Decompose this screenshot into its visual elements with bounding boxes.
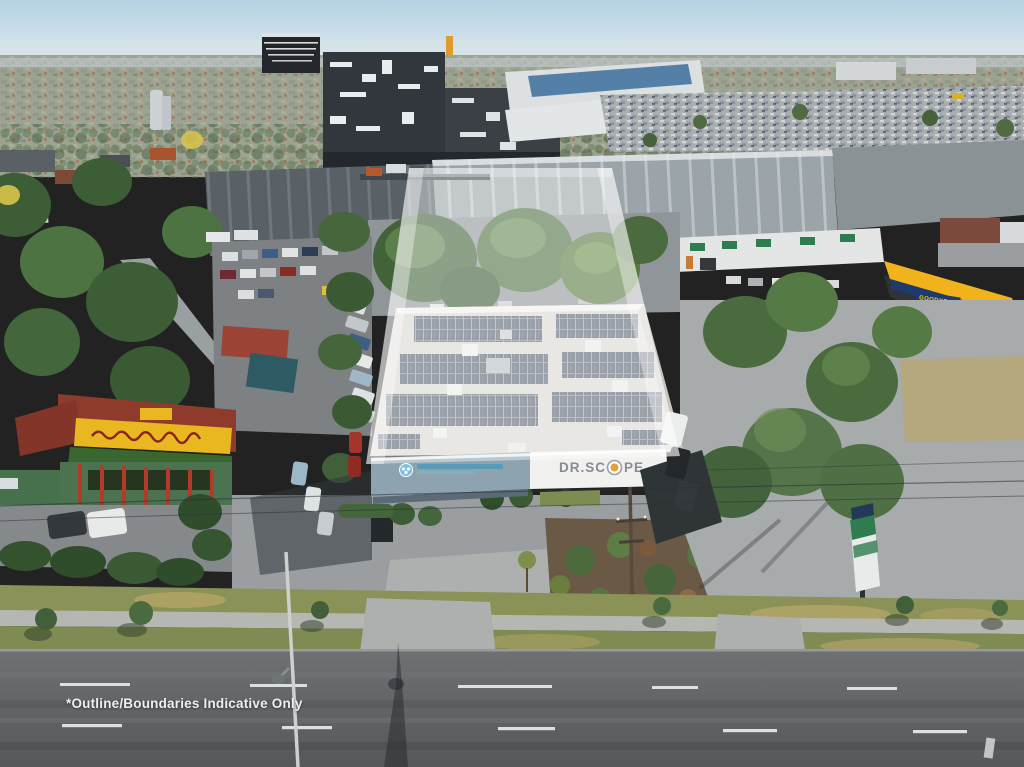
dr-scope-text-left: DR.SC [559, 460, 606, 475]
driveway-crossover-main [360, 598, 496, 656]
disclaimer-text: *Outline/Boundaries Indicative Only [66, 696, 303, 711]
palm-tree [518, 551, 536, 569]
striped-office-building [262, 33, 320, 73]
right-driveway [680, 272, 1024, 630]
streetlight-luminaire [271, 674, 285, 684]
company-logo [400, 464, 413, 477]
dr-scope-sign: DR.SC PE [559, 460, 644, 475]
aerial-photo: GOODYEAR GOODYEAR [0, 0, 1024, 767]
grain-silo [150, 90, 171, 130]
shop-strip [672, 228, 884, 288]
aerial-photo-canvas: GOODYEAR GOODYEAR [0, 0, 1024, 767]
shipping-container [246, 353, 298, 393]
dr-scope-logo-flame [611, 464, 619, 472]
company-name-blur [417, 464, 503, 469]
restaurant-carpark [0, 494, 232, 586]
